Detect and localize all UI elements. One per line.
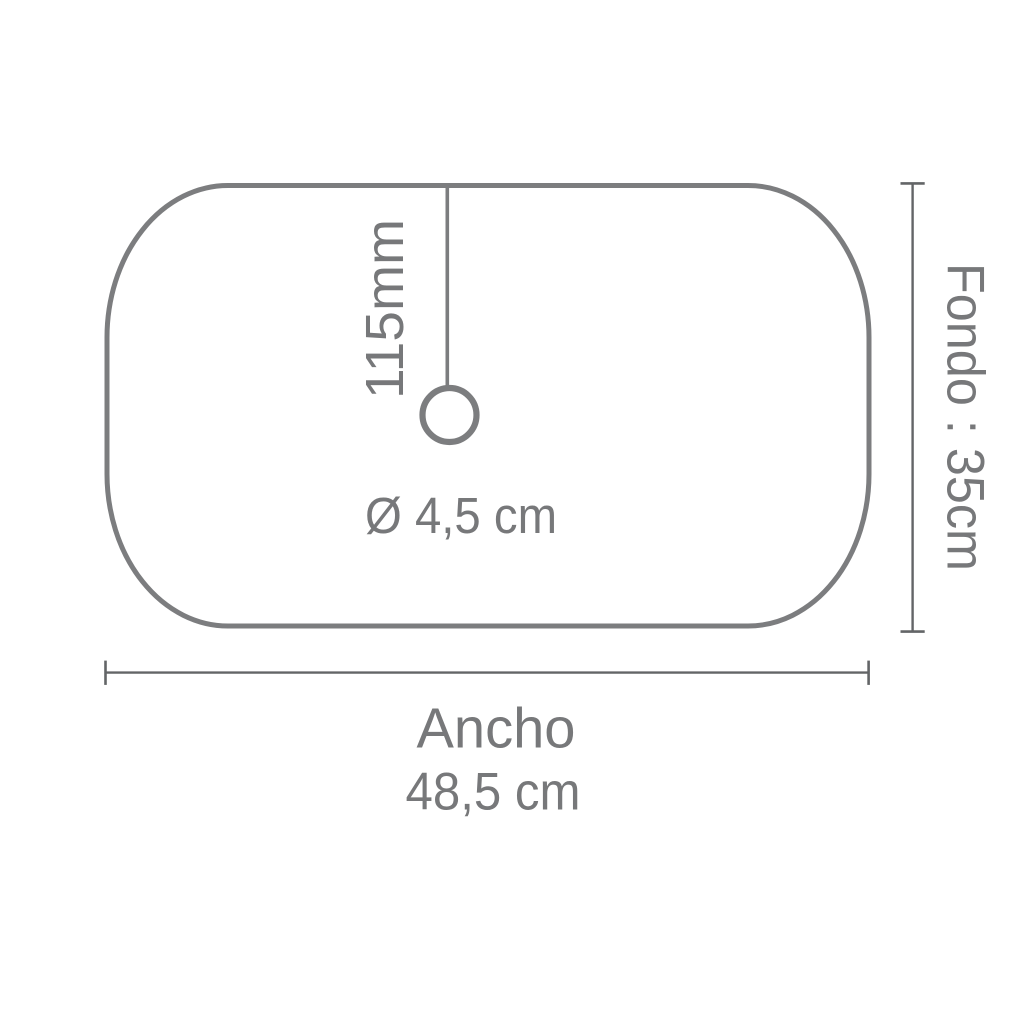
svg-text:115mm: 115mm	[356, 219, 415, 399]
svg-text:Ø 4,5 cm: Ø 4,5 cm	[365, 487, 557, 544]
svg-text:Fondo : 35cm: Fondo : 35cm	[935, 263, 994, 571]
svg-text:Ancho: Ancho	[417, 696, 576, 760]
svg-text:48,5 cm: 48,5 cm	[406, 763, 581, 822]
